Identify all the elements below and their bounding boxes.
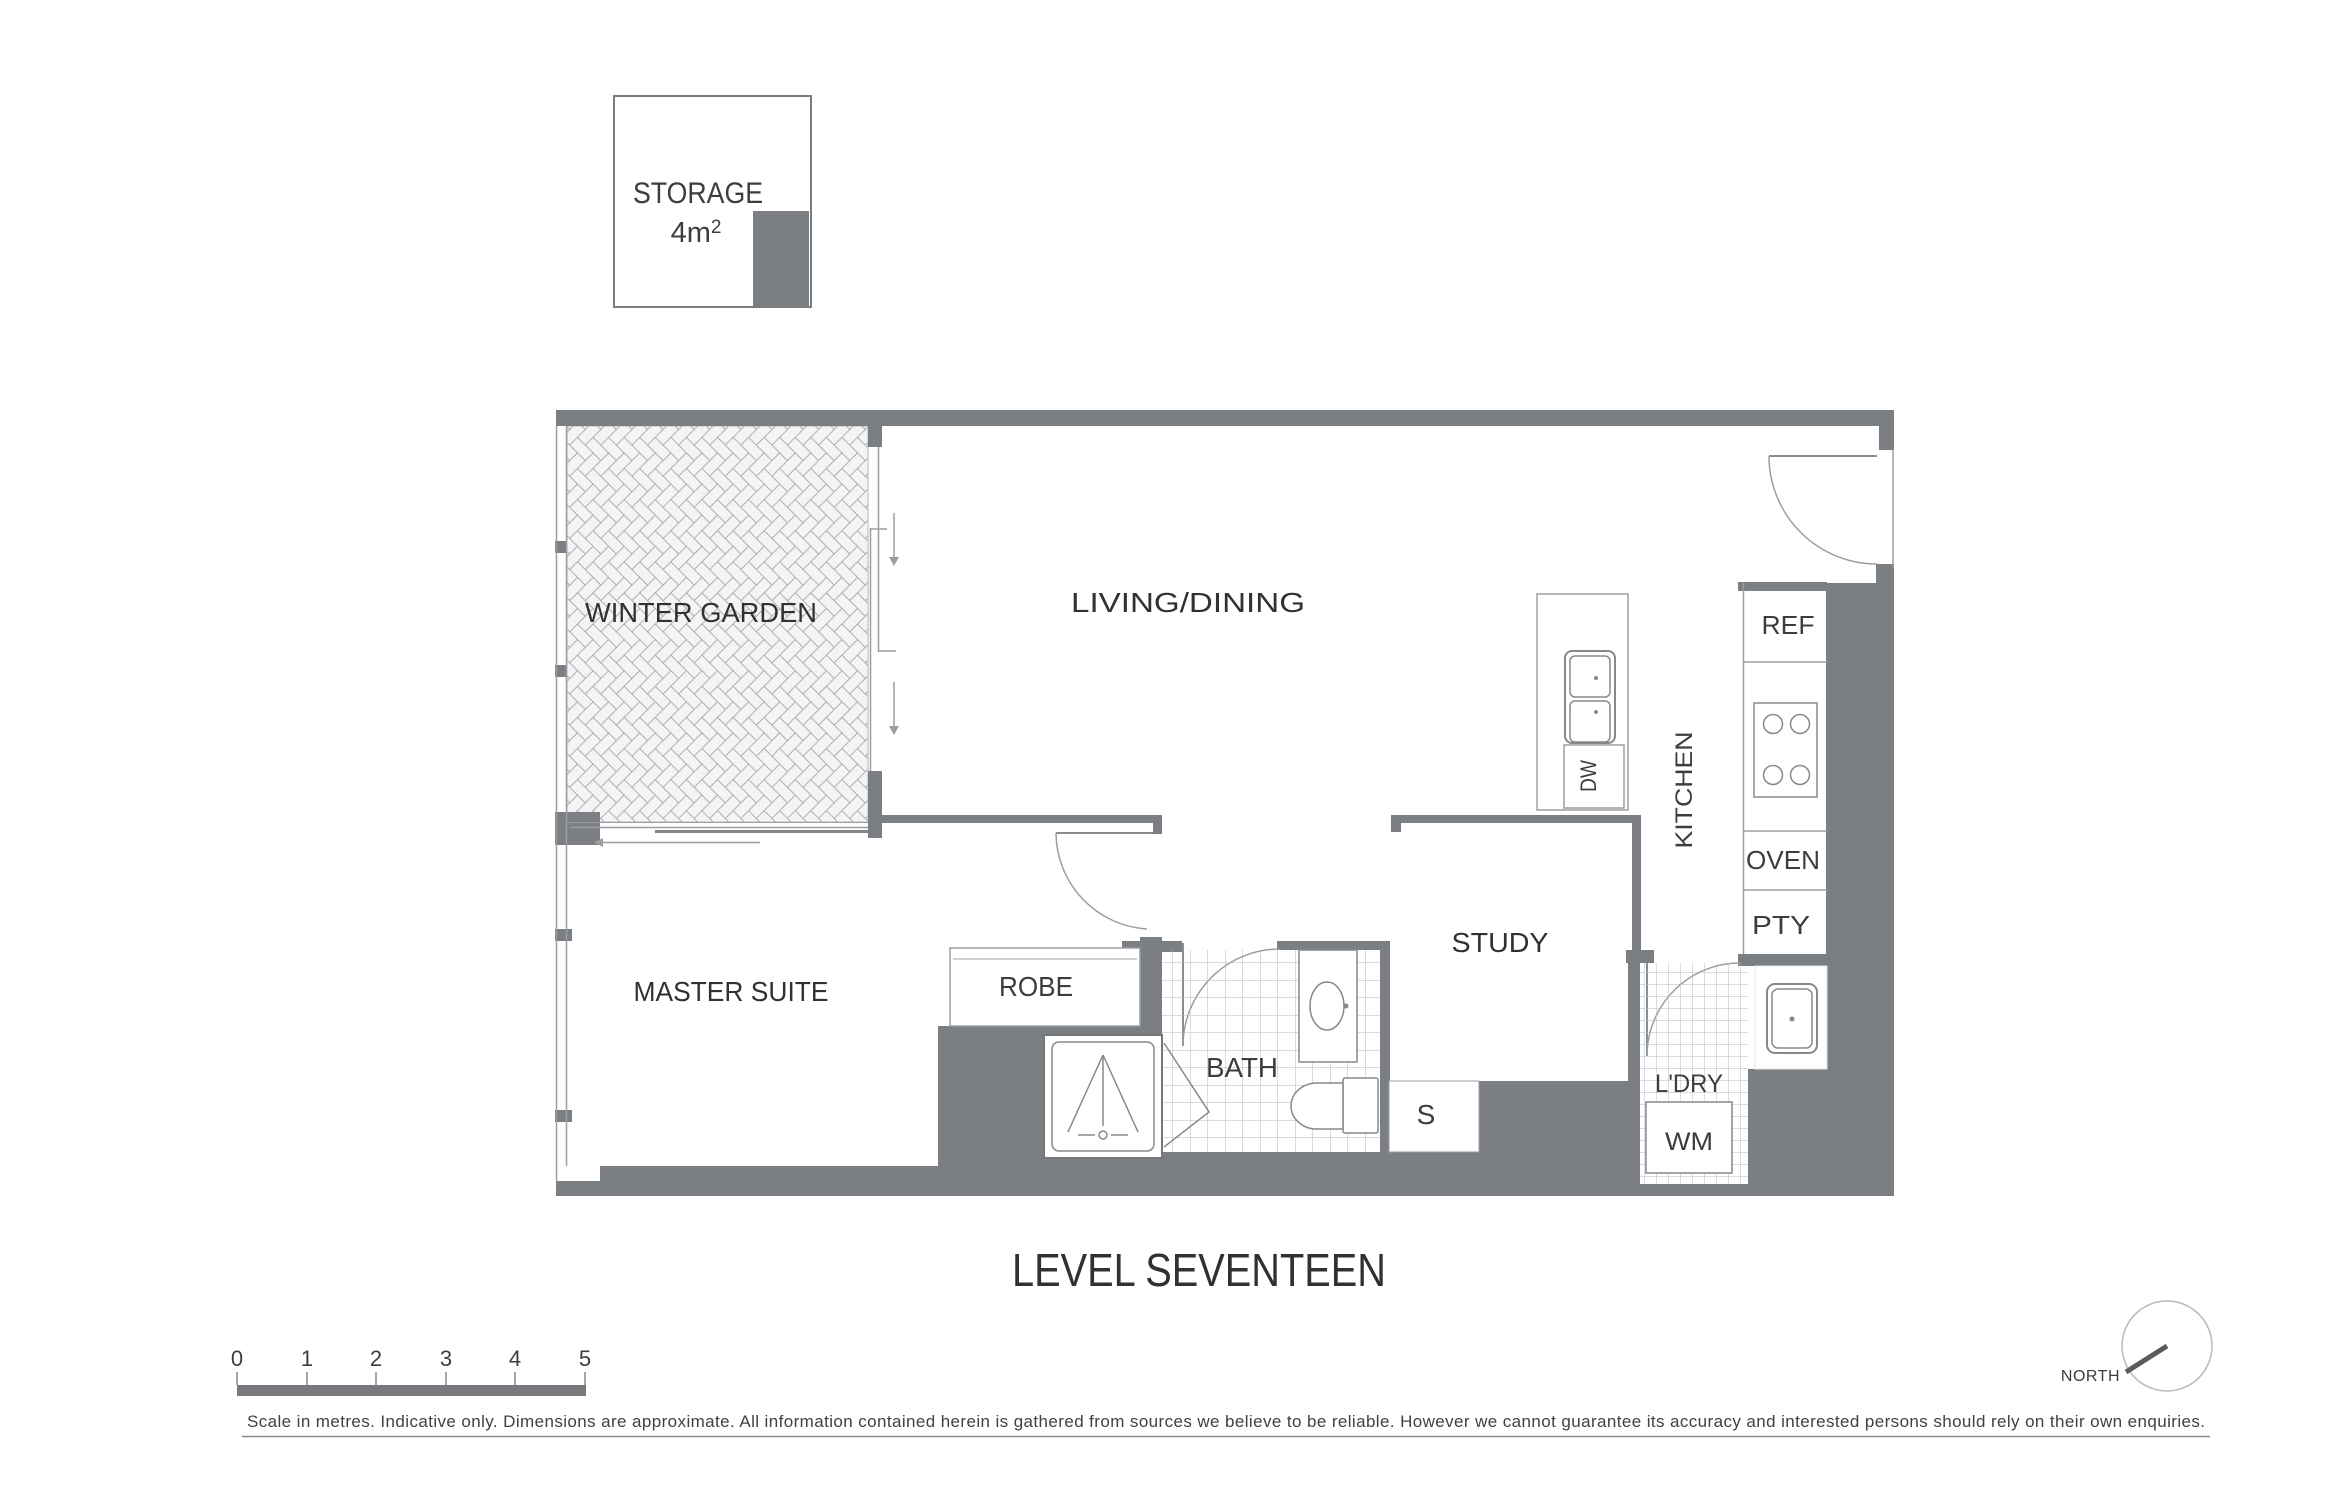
- svg-text:STORAGE: STORAGE: [633, 177, 763, 210]
- svg-text:NORTH: NORTH: [2061, 1368, 2120, 1385]
- svg-text:0: 0: [231, 1346, 243, 1371]
- svg-text:LIVING/DINING: LIVING/DINING: [1071, 587, 1305, 618]
- svg-text:REF: REF: [1762, 610, 1815, 640]
- svg-text:Scale in metres. Indicative on: Scale in metres. Indicative only. Dimens…: [247, 1412, 2205, 1431]
- svg-text:WINTER GARDEN: WINTER GARDEN: [585, 597, 817, 628]
- svg-text:PTY: PTY: [1752, 910, 1810, 940]
- svg-text:BATH: BATH: [1206, 1052, 1278, 1083]
- svg-text:4: 4: [509, 1346, 521, 1371]
- svg-text:MASTER SUITE: MASTER SUITE: [634, 976, 829, 1007]
- svg-text:3: 3: [440, 1346, 452, 1371]
- svg-text:1: 1: [301, 1346, 313, 1371]
- svg-text:LEVEL SEVENTEEN: LEVEL SEVENTEEN: [1012, 1244, 1386, 1296]
- svg-text:2: 2: [370, 1346, 382, 1371]
- svg-text:L'DRY: L'DRY: [1655, 1070, 1723, 1098]
- svg-text:OVEN: OVEN: [1746, 845, 1820, 875]
- svg-text:S: S: [1417, 1099, 1436, 1130]
- svg-text:STUDY: STUDY: [1452, 927, 1549, 958]
- svg-text:DW: DW: [1576, 760, 1601, 792]
- svg-text:WM: WM: [1665, 1128, 1713, 1156]
- svg-text:KITCHEN: KITCHEN: [1671, 732, 1698, 849]
- svg-text:ROBE: ROBE: [999, 971, 1073, 1002]
- svg-text:5: 5: [579, 1346, 591, 1371]
